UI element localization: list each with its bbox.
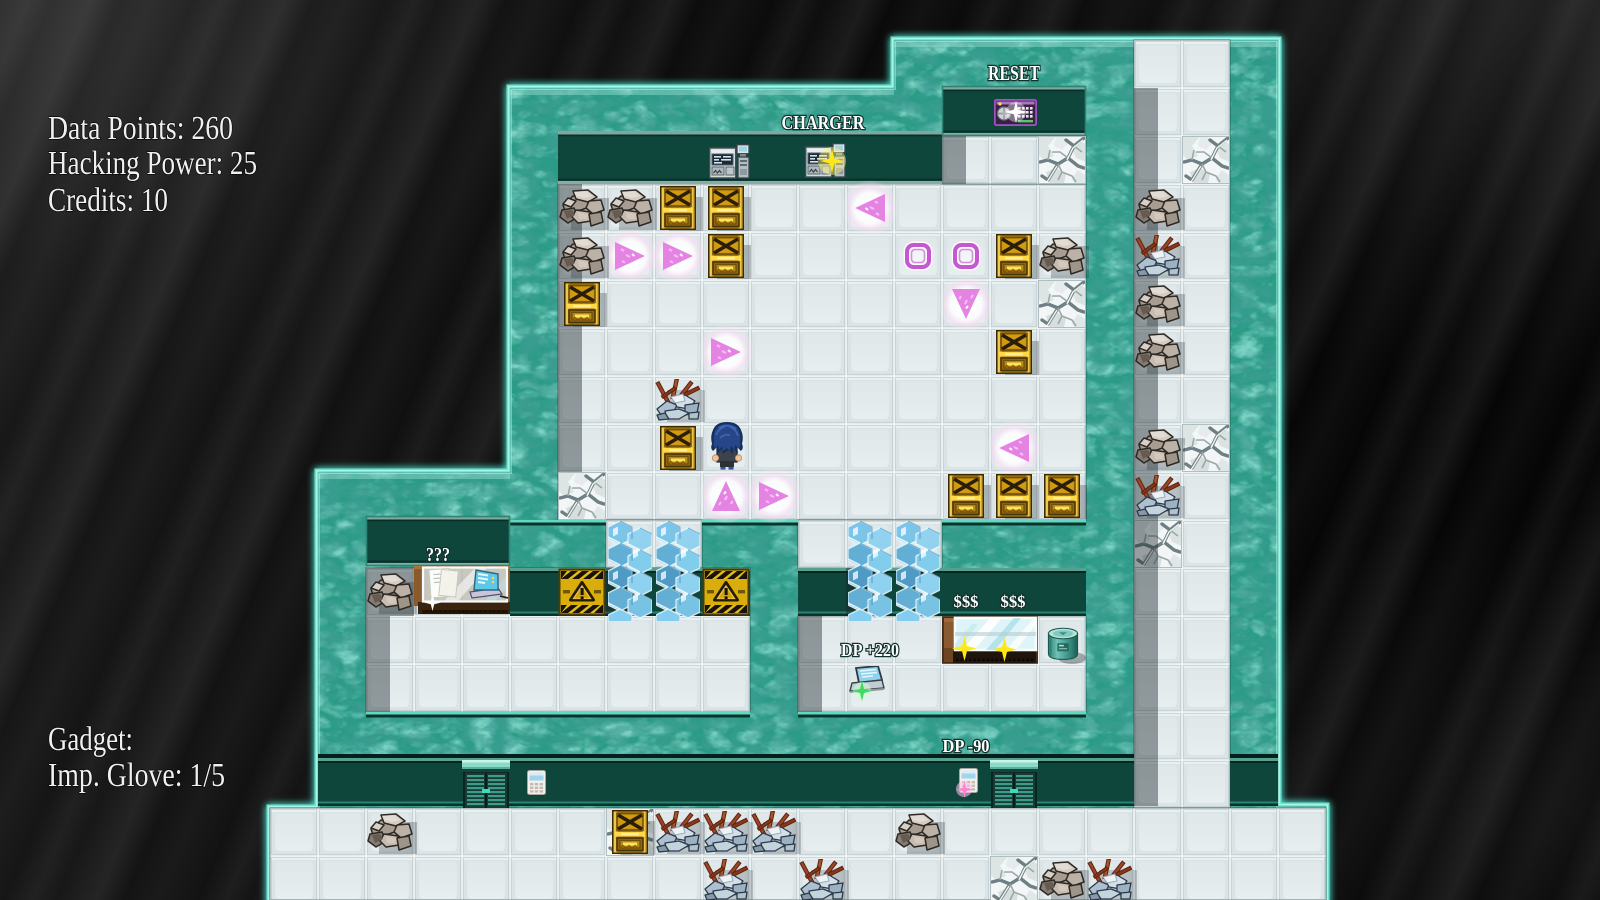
svg-text:Hacking Power: 25: Hacking Power: 25 (48, 145, 257, 182)
svg-text:$$$: $$$ (1001, 592, 1026, 611)
svg-text:DP -90: DP -90 (943, 736, 990, 756)
svg-text:Imp. Glove: 1/5: Imp. Glove: 1/5 (48, 757, 225, 794)
svg-text:CHARGER: CHARGER (782, 112, 865, 134)
svg-text:RESET: RESET (988, 61, 1040, 85)
svg-text:Gadget:: Gadget: (48, 721, 133, 758)
svg-text:DP +220: DP +220 (841, 640, 899, 660)
svg-text:???: ??? (426, 544, 450, 566)
svg-text:Data Points: 260: Data Points: 260 (48, 110, 233, 147)
svg-text:Credits: 10: Credits: 10 (48, 182, 168, 219)
svg-text:$$$: $$$ (954, 592, 979, 611)
